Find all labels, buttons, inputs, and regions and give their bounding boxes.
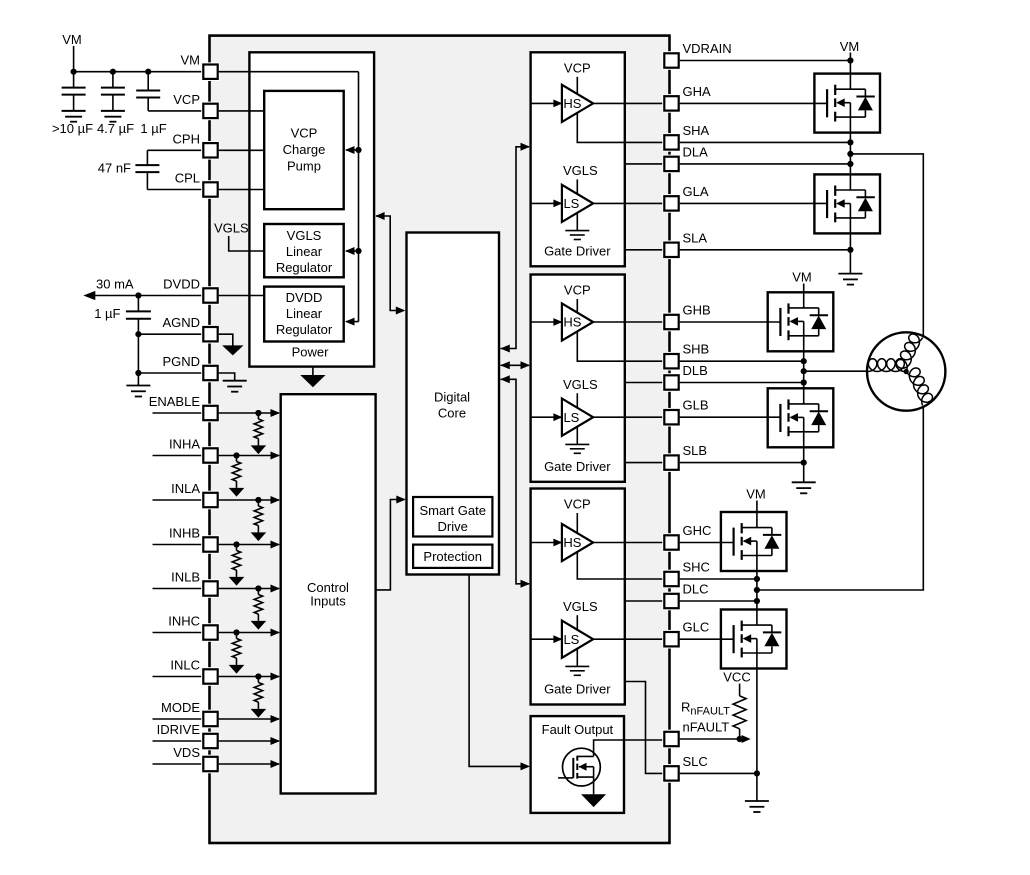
svg-text:Linear: Linear	[286, 306, 323, 321]
svg-text:DLA: DLA	[683, 144, 709, 159]
svg-text:DLC: DLC	[683, 582, 709, 597]
svg-text:Linear: Linear	[286, 244, 323, 259]
svg-text:VDRAIN: VDRAIN	[683, 41, 732, 56]
svg-text:CPL: CPL	[175, 171, 200, 186]
svg-text:SHA: SHA	[683, 123, 710, 138]
svg-text:LS: LS	[563, 410, 579, 425]
svg-text:LS: LS	[563, 196, 579, 211]
svg-text:VM: VM	[181, 53, 201, 68]
svg-text:1 µF: 1 µF	[94, 306, 120, 321]
svg-text:CPH: CPH	[173, 131, 200, 146]
svg-text:GHB: GHB	[683, 303, 711, 318]
svg-text:INHC: INHC	[168, 614, 200, 629]
svg-text:Fault Output: Fault Output	[542, 722, 614, 737]
svg-text:47 nF: 47 nF	[98, 161, 131, 176]
svg-text:Gate Driver: Gate Driver	[544, 459, 611, 474]
svg-text:ENABLE: ENABLE	[149, 394, 201, 409]
svg-text:INHA: INHA	[169, 437, 200, 452]
svg-text:Smart Gate: Smart Gate	[419, 503, 485, 518]
svg-text:GHA: GHA	[683, 84, 712, 99]
svg-text:VGLS: VGLS	[214, 221, 249, 236]
svg-text:Digital: Digital	[434, 390, 470, 405]
svg-text:SLA: SLA	[683, 230, 708, 245]
svg-text:GLA: GLA	[683, 184, 709, 199]
svg-text:Drive: Drive	[438, 519, 468, 534]
svg-text:GLB: GLB	[683, 398, 709, 413]
svg-text:SHB: SHB	[683, 342, 710, 357]
svg-text:DVDD: DVDD	[163, 277, 200, 292]
svg-text:VCP: VCP	[564, 61, 591, 76]
svg-text:Power: Power	[292, 344, 330, 359]
svg-text:Inputs: Inputs	[310, 594, 346, 609]
svg-text:1 µF: 1 µF	[140, 121, 166, 136]
svg-text:SLC: SLC	[683, 754, 708, 769]
svg-text:DVDD: DVDD	[286, 290, 323, 305]
svg-text:4.7 µF: 4.7 µF	[97, 121, 134, 136]
svg-text:HS: HS	[563, 315, 581, 330]
svg-text:nFAULT: nFAULT	[683, 720, 730, 735]
svg-text:AGND: AGND	[162, 315, 200, 330]
svg-text:INHB: INHB	[169, 526, 200, 541]
svg-text:Regulator: Regulator	[276, 322, 333, 337]
svg-text:Pump: Pump	[287, 159, 321, 174]
svg-text:Regulator: Regulator	[276, 260, 333, 275]
svg-text:VCP: VCP	[564, 497, 591, 512]
svg-text:Charge: Charge	[283, 142, 326, 157]
svg-text:IDRIVE: IDRIVE	[157, 722, 201, 737]
svg-text:Protection: Protection	[423, 549, 482, 564]
svg-text:VM: VM	[840, 39, 860, 54]
svg-text:PGND: PGND	[162, 354, 200, 369]
svg-text:VCP: VCP	[564, 283, 591, 298]
svg-text:MODE: MODE	[161, 700, 200, 715]
svg-text:Gate Driver: Gate Driver	[544, 243, 611, 258]
svg-text:HS: HS	[563, 535, 581, 550]
svg-text:LS: LS	[563, 632, 579, 647]
svg-text:VGLS: VGLS	[563, 599, 598, 614]
svg-text:INLA: INLA	[171, 481, 200, 496]
svg-text:VGLS: VGLS	[563, 163, 598, 178]
svg-text:VGLS: VGLS	[563, 377, 598, 392]
svg-text:VM: VM	[792, 270, 812, 285]
svg-text:SHC: SHC	[683, 560, 710, 575]
svg-text:VM: VM	[62, 32, 82, 47]
svg-text:INLC: INLC	[170, 658, 200, 673]
svg-text:VCC: VCC	[723, 670, 750, 685]
svg-text:RnFAULT: RnFAULT	[681, 700, 730, 718]
svg-text:30 mA: 30 mA	[96, 276, 134, 291]
svg-text:VGLS: VGLS	[287, 228, 322, 243]
svg-text:HS: HS	[563, 96, 581, 111]
svg-text:>10 µF: >10 µF	[52, 121, 93, 136]
svg-text:GHC: GHC	[683, 523, 712, 538]
svg-text:VCP: VCP	[173, 92, 200, 107]
svg-text:SLB: SLB	[683, 443, 708, 458]
svg-text:Core: Core	[438, 406, 466, 421]
svg-text:VM: VM	[746, 487, 766, 502]
svg-text:VCP: VCP	[291, 126, 318, 141]
svg-text:INLB: INLB	[171, 570, 200, 585]
svg-text:DLB: DLB	[683, 363, 708, 378]
svg-text:GLC: GLC	[683, 620, 710, 635]
svg-text:VDS: VDS	[173, 745, 200, 760]
svg-text:Gate Driver: Gate Driver	[544, 682, 611, 697]
